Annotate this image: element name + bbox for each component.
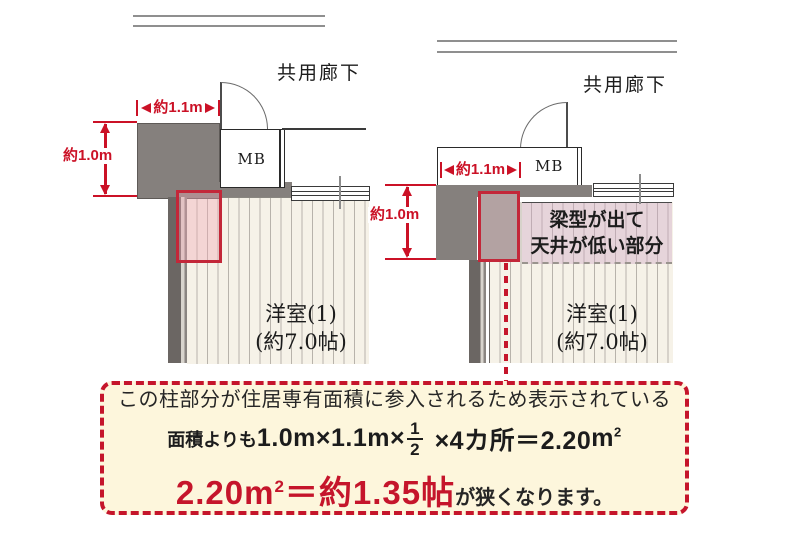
room-name: 洋室(1)	[537, 300, 667, 328]
result-unit: m2	[244, 474, 285, 512]
corridor-label: 共用廊下	[277, 58, 361, 85]
door-swing-arc	[520, 102, 567, 149]
arrow-right-icon	[507, 165, 517, 175]
width-dimension: 約1.1m	[136, 100, 220, 116]
railing-line	[292, 191, 369, 192]
door-swing-arc	[221, 82, 268, 129]
window-railing	[593, 183, 674, 197]
result-suffix: が狭くなります。	[455, 481, 613, 510]
arrow-up-icon	[100, 123, 110, 133]
sqm-base: m	[244, 474, 274, 511]
height-dimension-label: 約1.0m	[61, 148, 114, 164]
corridor-line	[437, 51, 677, 53]
corridor-line	[133, 15, 325, 17]
width-dimension: 約1.1m	[440, 162, 521, 178]
mb-box: MB 約1.1m	[437, 147, 582, 187]
width-dimension-label: 約1.1m	[456, 162, 505, 178]
beam-note-line1: 梁型が出て	[524, 207, 670, 233]
arrow-down-icon	[402, 248, 412, 258]
pillar	[436, 185, 477, 260]
fraction-numerator: 1	[407, 419, 422, 438]
pillar-highlight	[176, 190, 222, 263]
mb-label: MB	[535, 157, 563, 175]
dimension-end-bar	[136, 100, 138, 116]
width-dimension-label: 約1.1m	[153, 100, 202, 116]
fraction-denominator: 2	[407, 438, 422, 459]
note-formula-prefix: 面積よりも	[167, 426, 257, 452]
pillar-highlight	[478, 191, 520, 262]
dimension-end-bar	[385, 258, 436, 260]
arrow-left-icon	[141, 103, 151, 113]
dimension-end-bar	[519, 162, 521, 178]
mb-box-double-edge	[577, 148, 579, 186]
note-formula-a: 1.0m×1.1m×	[257, 424, 405, 453]
beam-note: 梁型が出て 天井が低い部分	[524, 207, 670, 259]
railing-line	[594, 188, 673, 189]
corridor-wall-line	[282, 128, 366, 130]
window-railing	[291, 186, 370, 201]
note-line1: この柱部分が住居専有面積に参入されるため表示されている	[118, 383, 671, 412]
room-size: (約7.0帖)	[537, 328, 667, 356]
note-result-line: 2.20 m2 ＝約1.35帖 が狭くなります。	[176, 466, 613, 514]
room-name: 洋室(1)	[236, 300, 366, 328]
dimension-end-bar	[440, 162, 442, 178]
corridor-line	[437, 40, 677, 42]
sqm-superscript: 2	[274, 477, 284, 496]
fraction-one-half: 1 2	[407, 419, 422, 459]
callout-connector-line	[504, 263, 508, 381]
result-value: 2.20	[176, 474, 244, 512]
arrow-down-icon	[100, 185, 110, 195]
railing-tick	[639, 174, 641, 204]
dimension-end-bar	[93, 195, 137, 197]
dimension-end-bar	[218, 100, 220, 116]
room-label: 洋室(1) (約7.0帖)	[537, 300, 667, 356]
note-box: この柱部分が住居専有面積に参入されるため表示されている 面積よりも 1.0m×1…	[100, 381, 689, 515]
railing-line	[292, 195, 369, 196]
wall-strip	[469, 260, 486, 363]
square-meter-unit: m2	[591, 424, 621, 453]
mb-box: MB	[220, 129, 285, 188]
railing-line	[594, 191, 673, 192]
arrow-right-icon	[205, 103, 215, 113]
note-formula-line: 面積よりも 1.0m×1.1m× 1 2 ×4カ所＝2.20 m2	[167, 419, 621, 459]
sqm-superscript: 2	[614, 425, 622, 440]
sqm-base: m	[591, 424, 614, 452]
floor-plan-comparison-figure: 共用廊下 約1.1m 約1.0m MB	[0, 0, 800, 542]
railing-tick	[339, 176, 341, 209]
arrow-left-icon	[444, 165, 454, 175]
beam-note-line2: 天井が低い部分	[524, 233, 670, 259]
height-dimension-label: 約1.0m	[368, 207, 421, 223]
mb-box-double-edge	[279, 130, 281, 187]
corridor-label: 共用廊下	[583, 70, 667, 97]
room-label: 洋室(1) (約7.0帖)	[236, 300, 366, 356]
pillar	[137, 123, 220, 199]
arrow-up-icon	[402, 186, 412, 196]
corridor-line	[133, 25, 325, 27]
mb-label: MB	[238, 150, 266, 168]
result-equivalence: ＝約1.35帖	[285, 466, 455, 514]
note-formula-b: ×4カ所＝2.20	[435, 421, 592, 457]
room-size: (約7.0帖)	[236, 328, 366, 356]
